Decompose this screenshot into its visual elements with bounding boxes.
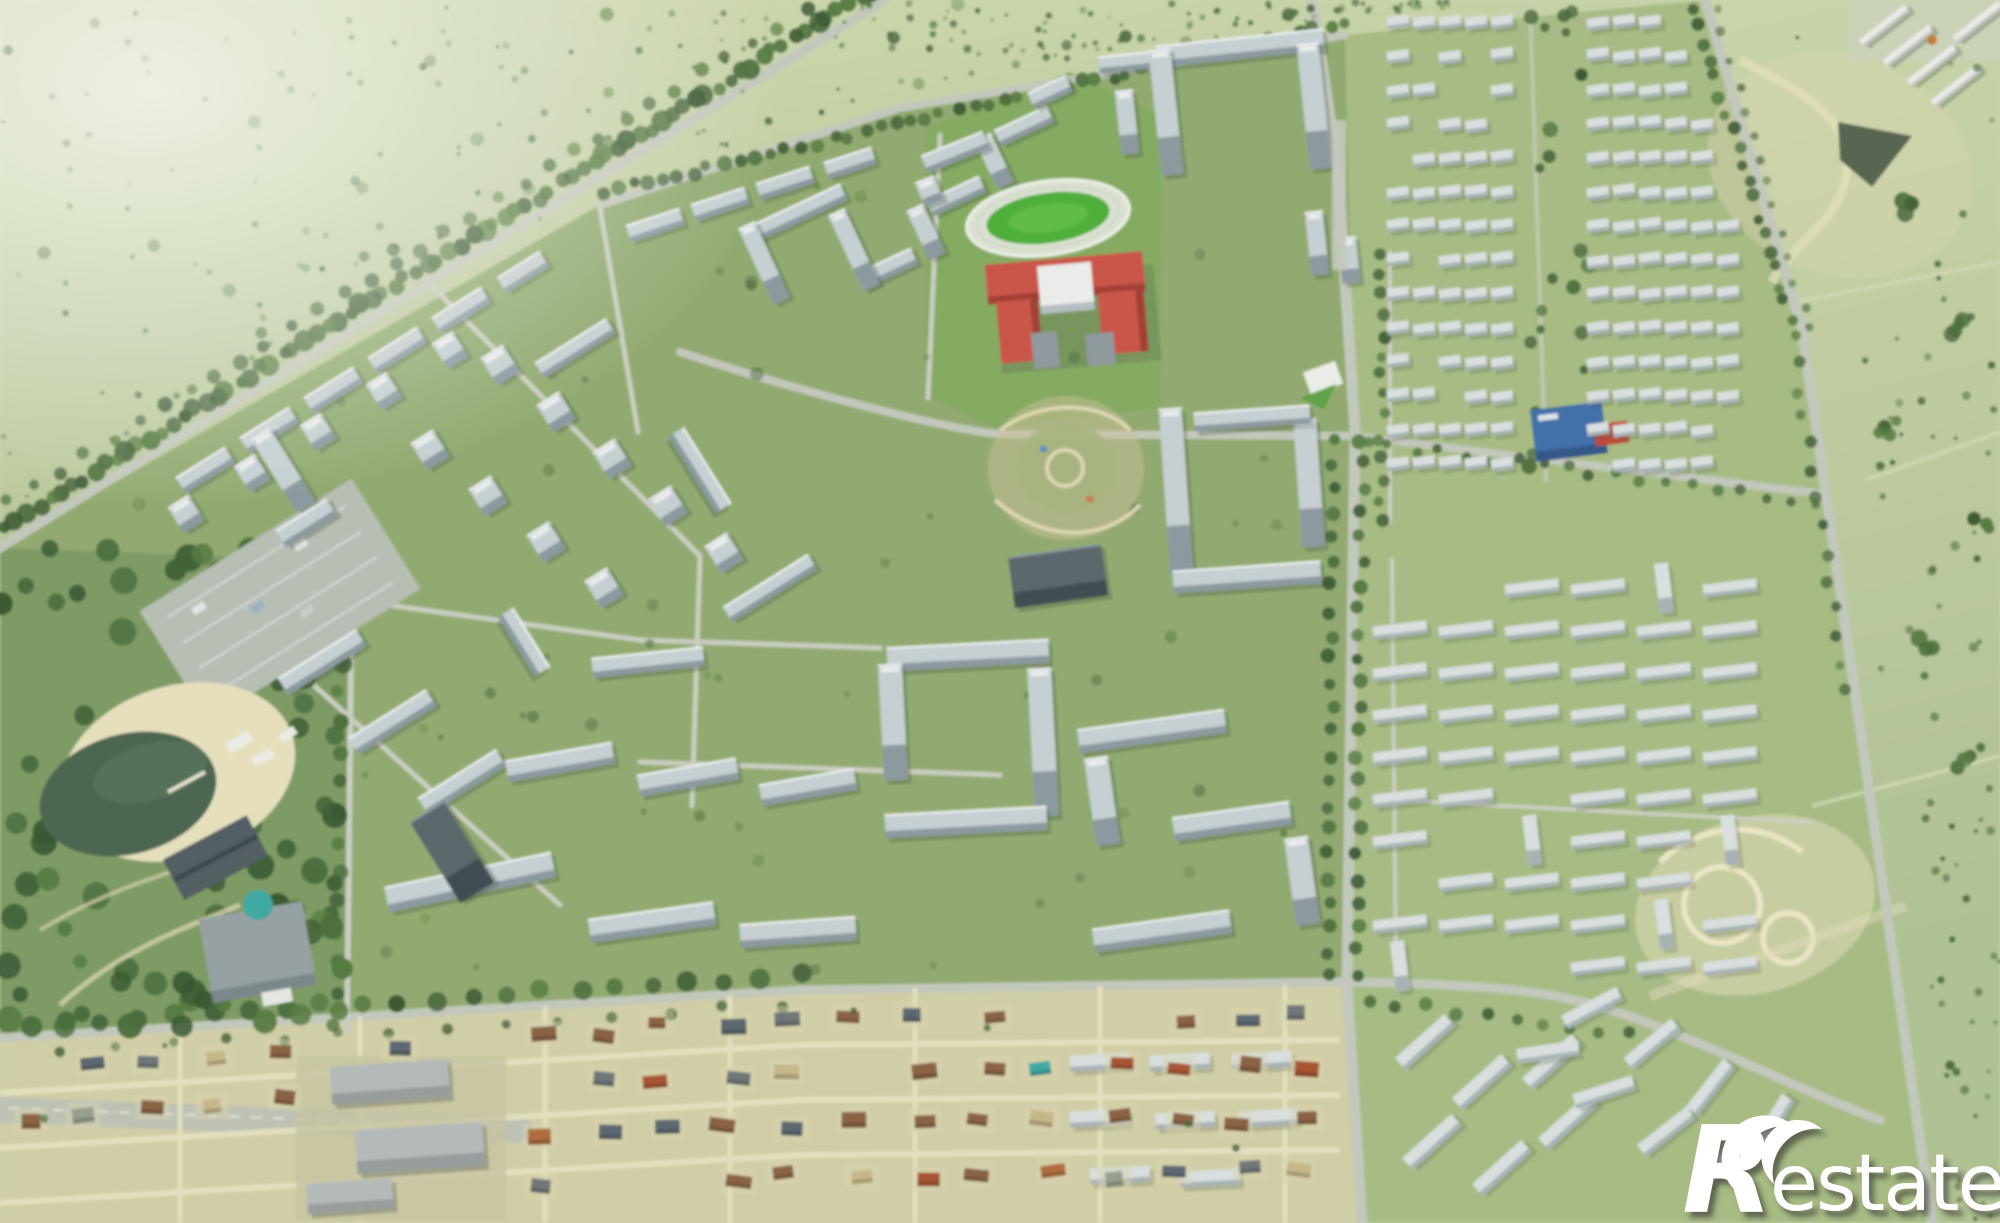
masterplan-aerial-render: R estate — [0, 0, 2000, 1223]
color-cast — [0, 0, 2000, 1223]
watermark-wordmark: estate — [1770, 1139, 2000, 1223]
scene-root — [0, 0, 2000, 1223]
aerial-scene: R estate — [0, 0, 2000, 1223]
